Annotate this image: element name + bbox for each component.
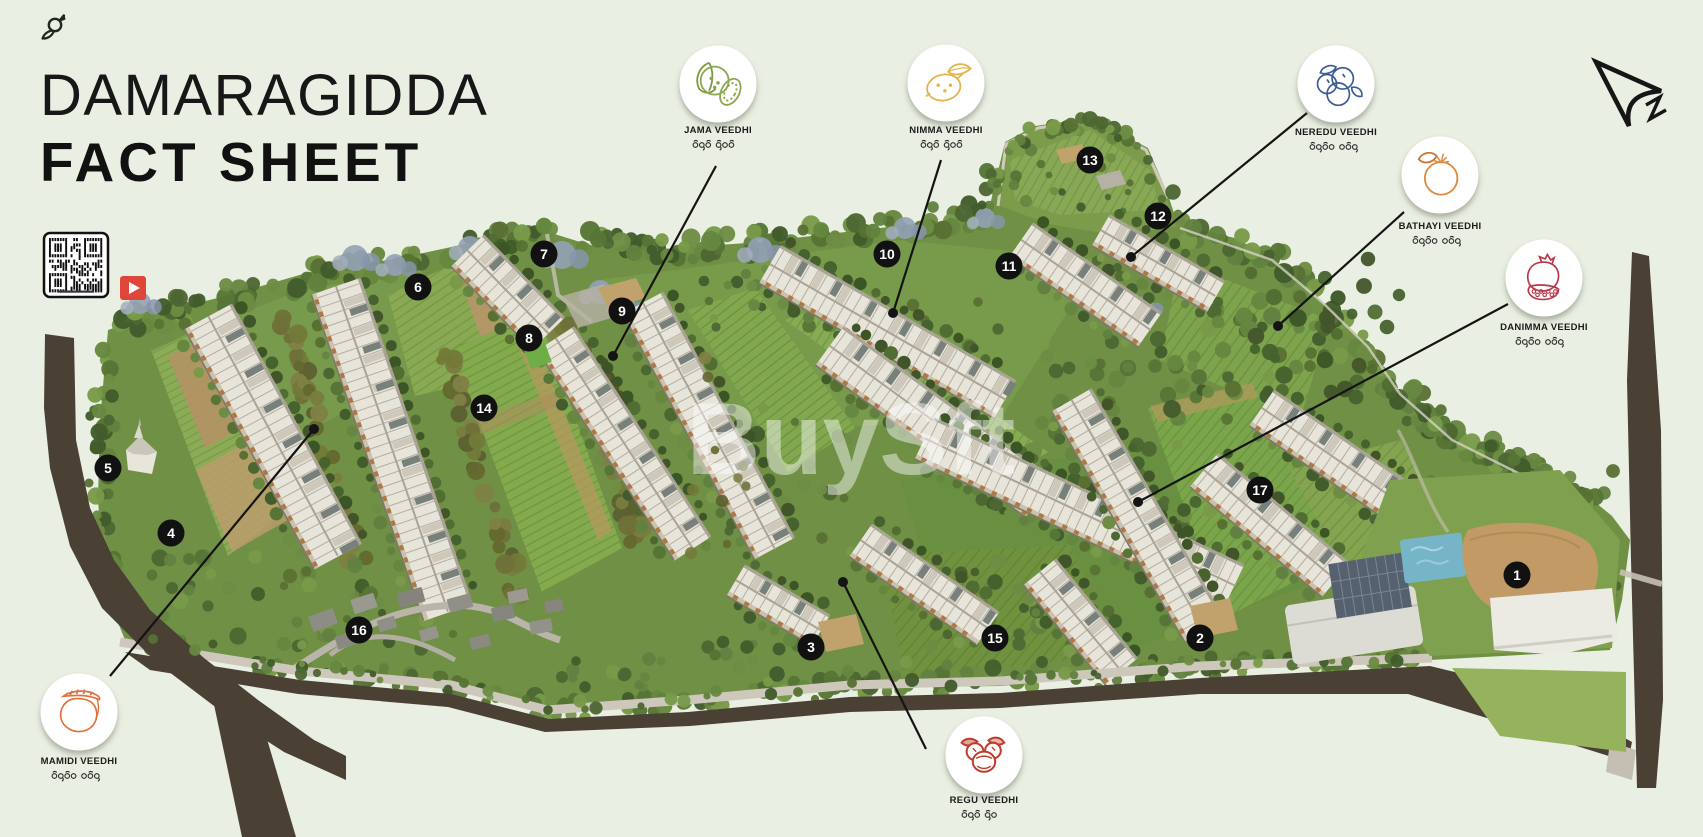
svg-text:NEREDU VEEDHI: NEREDU VEEDHI	[1295, 127, 1377, 138]
svg-text:12: 12	[1150, 208, 1166, 224]
svg-text:14: 14	[476, 400, 492, 416]
svg-text:16: 16	[351, 622, 367, 638]
svg-text:7: 7	[540, 246, 548, 262]
svg-text:MAMIDI VEEDHI: MAMIDI VEEDHI	[41, 756, 118, 767]
svg-text:JAMA VEEDHI: JAMA VEEDHI	[684, 125, 752, 136]
svg-text:17: 17	[1252, 482, 1268, 498]
svg-text:4: 4	[167, 525, 175, 541]
svg-text:BATHAYI VEEDHI: BATHAYI VEEDHI	[1399, 221, 1482, 232]
svg-text:15: 15	[987, 630, 1003, 646]
svg-text:10: 10	[879, 246, 895, 262]
svg-text:11: 11	[1002, 258, 1017, 274]
svg-text:1: 1	[1513, 567, 1521, 583]
svg-text:DAMARAGIDDA: DAMARAGIDDA	[40, 63, 488, 128]
svg-text:5: 5	[104, 460, 112, 476]
svg-text:3: 3	[807, 639, 815, 655]
svg-text:9: 9	[618, 303, 626, 319]
svg-text:BuySft: BuySft	[687, 382, 1016, 496]
svg-text:REGU VEEDHI: REGU VEEDHI	[950, 795, 1019, 806]
svg-text:6: 6	[414, 279, 422, 295]
svg-text:NIMMA VEEDHI: NIMMA VEEDHI	[909, 125, 982, 136]
svg-text:DANIMMA VEEDHI: DANIMMA VEEDHI	[1500, 322, 1588, 333]
svg-text:13: 13	[1082, 152, 1098, 168]
svg-text:2: 2	[1196, 630, 1204, 646]
svg-text:8: 8	[525, 330, 533, 346]
svg-text:FACT SHEET: FACT SHEET	[40, 131, 422, 193]
